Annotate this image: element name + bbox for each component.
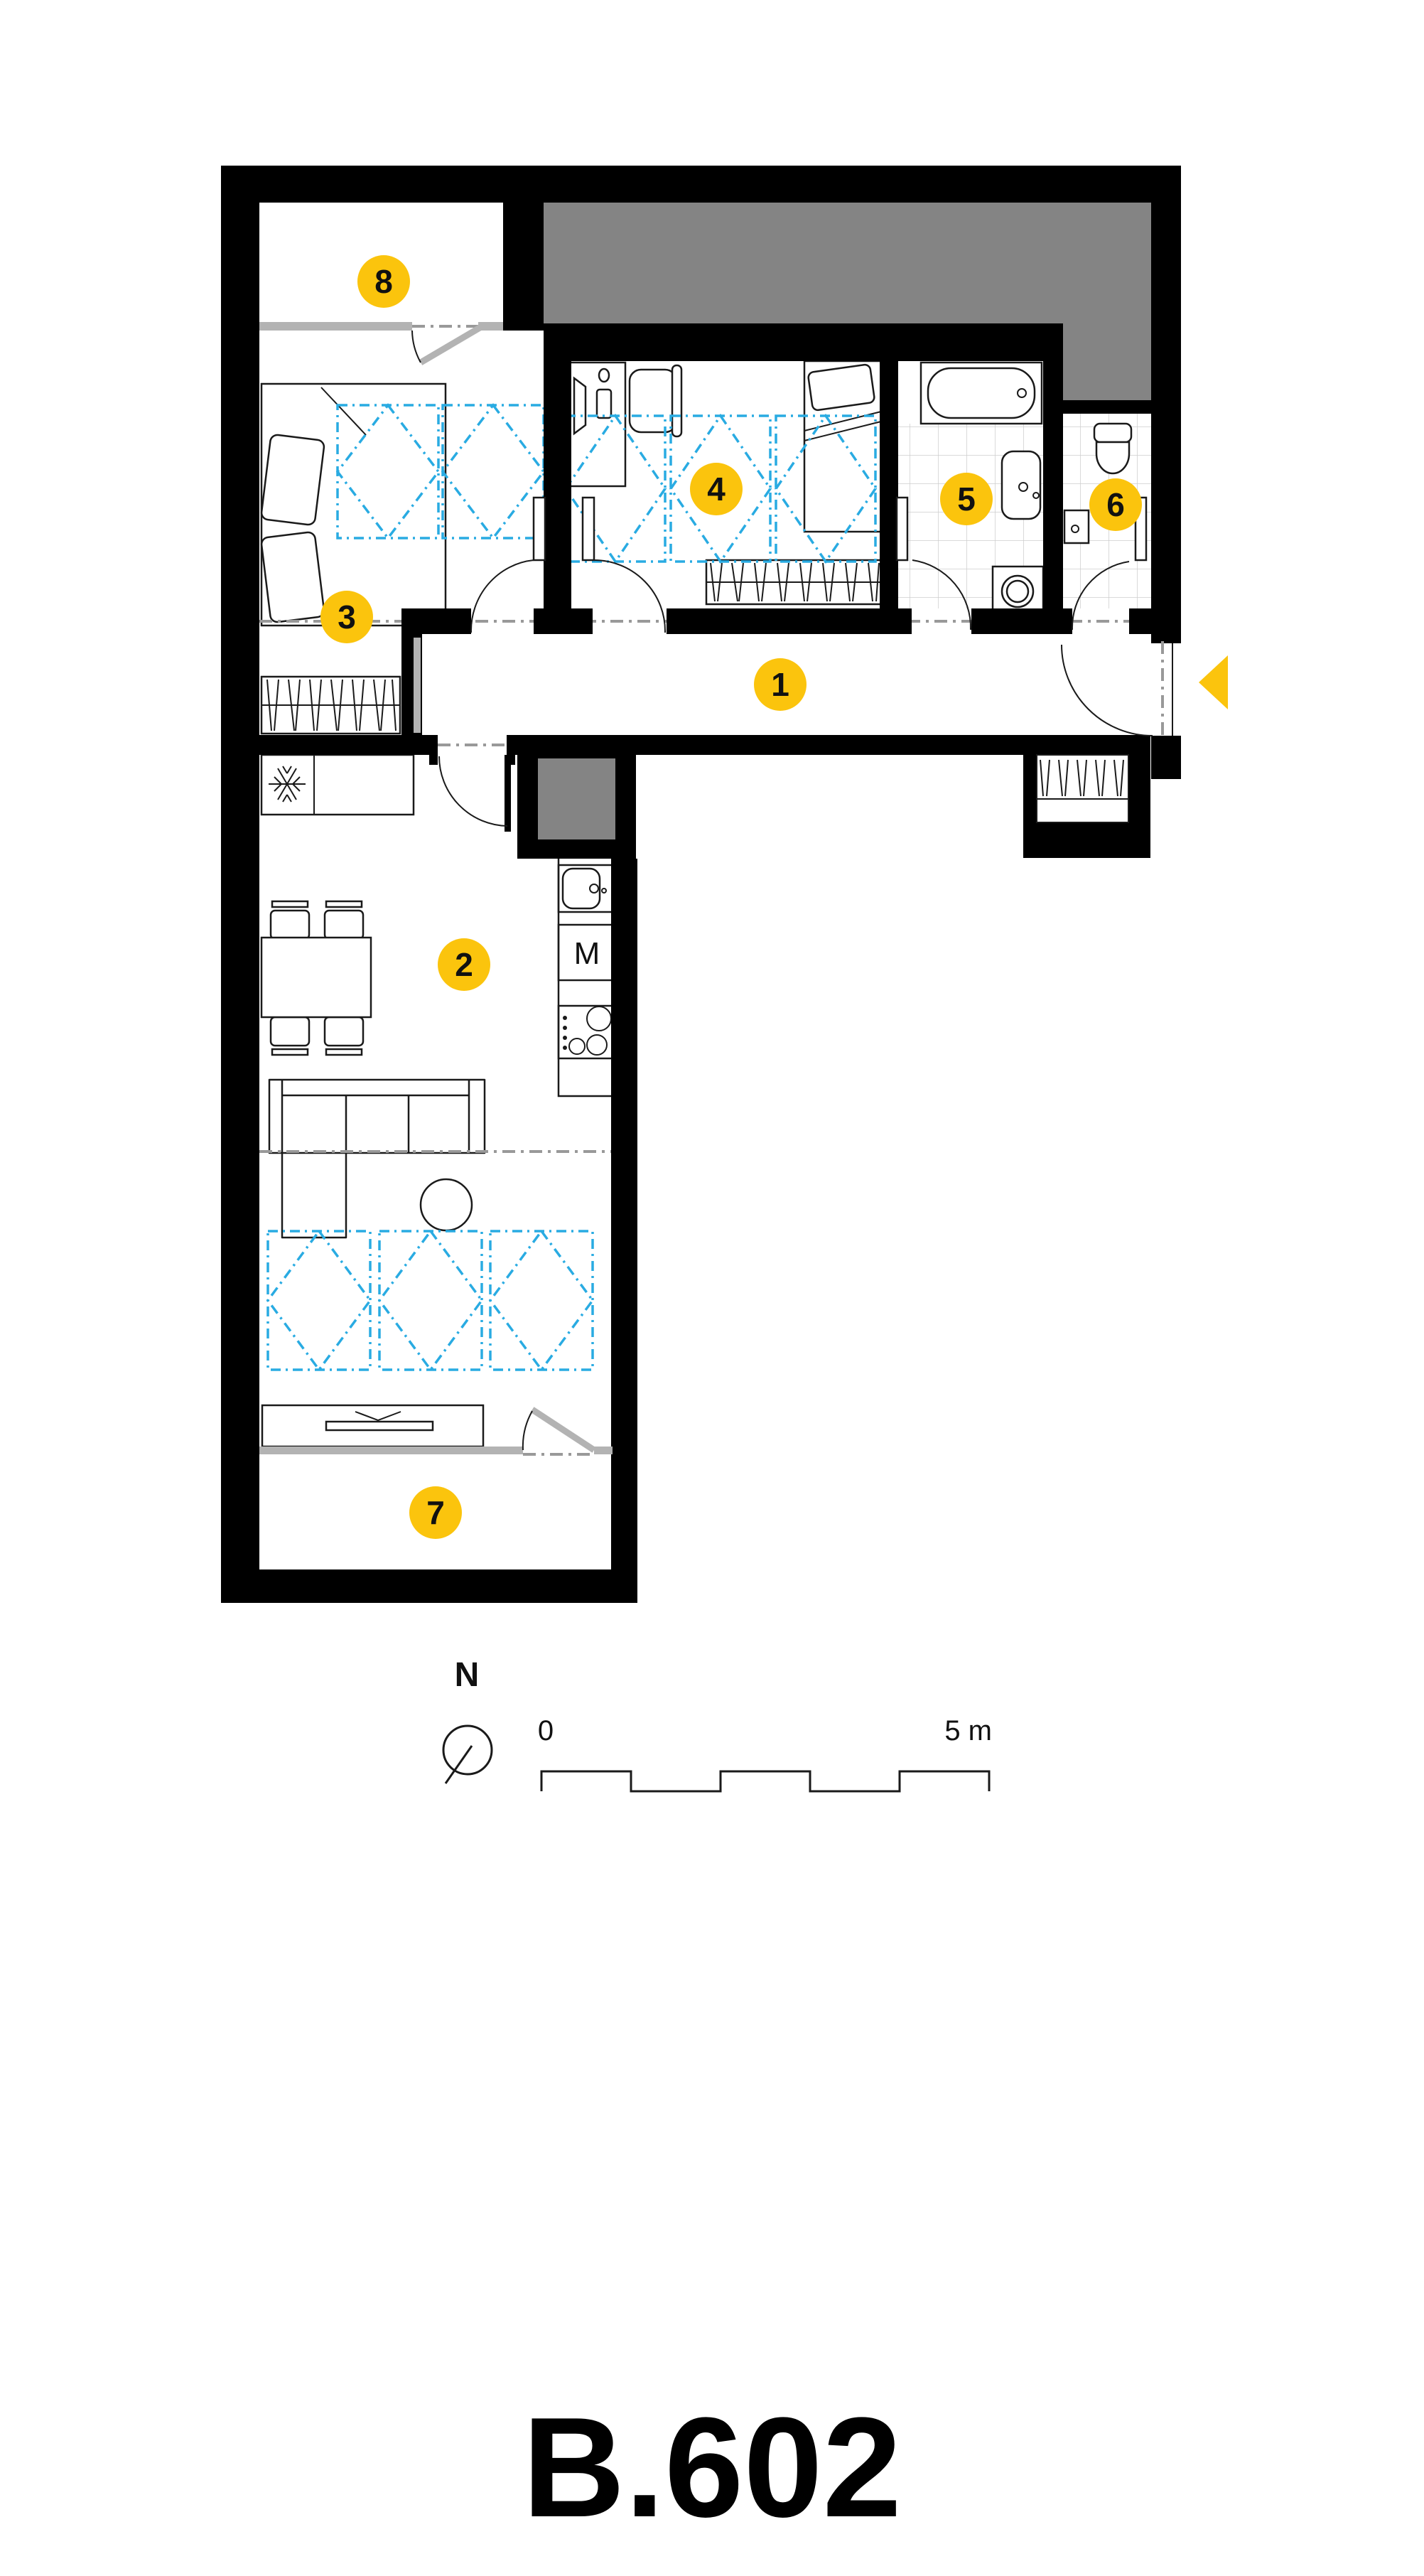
entrance-radiator-niche bbox=[1037, 755, 1128, 822]
wardrobe bbox=[706, 560, 884, 604]
svg-text:N: N bbox=[455, 1656, 480, 1694]
room4-door-leaf bbox=[583, 498, 594, 560]
chair bbox=[325, 1017, 363, 1046]
loggia-door-leaf bbox=[421, 327, 481, 363]
chair bbox=[271, 1017, 309, 1046]
chair-backrest bbox=[272, 1049, 308, 1055]
svg-text:7: 7 bbox=[426, 1494, 445, 1531]
desk-chair bbox=[630, 370, 676, 432]
loggia-door-swing bbox=[412, 331, 421, 363]
chair-backrest bbox=[326, 1049, 362, 1055]
bathroom-door-leaf bbox=[897, 498, 907, 560]
toilet-tank bbox=[1094, 424, 1131, 442]
scale-bar: 0 5 m bbox=[538, 1715, 992, 1791]
installation-shaft bbox=[538, 758, 615, 839]
pillow bbox=[808, 364, 875, 411]
chair bbox=[325, 911, 363, 939]
balcony-glazing bbox=[259, 1447, 523, 1454]
svg-text:2: 2 bbox=[455, 946, 473, 983]
dining-table bbox=[261, 938, 371, 1017]
living-door-swing bbox=[439, 756, 507, 826]
microwave-label: M bbox=[574, 936, 600, 971]
room-marker-5: 5 bbox=[940, 473, 993, 525]
room-marker-1: 1 bbox=[754, 658, 807, 711]
keyboard bbox=[597, 390, 611, 418]
monitor-icon bbox=[574, 378, 586, 434]
room-marker-7: 7 bbox=[409, 1486, 462, 1539]
svg-text:6: 6 bbox=[1106, 486, 1125, 523]
dining-set bbox=[261, 901, 371, 1055]
north-arrow-icon: N bbox=[443, 1656, 492, 1783]
chair-backrest bbox=[326, 901, 362, 907]
entrance-arrow-icon bbox=[1199, 655, 1228, 709]
balcony-door-leaf bbox=[532, 1410, 594, 1450]
pillow bbox=[261, 434, 325, 525]
toilet-bowl bbox=[1096, 442, 1129, 473]
tv-unit bbox=[262, 1405, 483, 1447]
chair-backrest bbox=[272, 901, 308, 907]
room3-door-leaf bbox=[534, 498, 545, 560]
washbasin bbox=[1002, 451, 1040, 519]
chair-backrest bbox=[672, 365, 681, 436]
floor-plan-page: M bbox=[0, 0, 1424, 2576]
room3-west-door-leaf bbox=[414, 638, 421, 733]
svg-text:1: 1 bbox=[771, 666, 789, 703]
room-marker-3: 3 bbox=[320, 591, 373, 643]
floor-plan-canvas: M bbox=[0, 0, 1424, 2576]
sofa-group bbox=[269, 1080, 485, 1238]
room-marker-4: 4 bbox=[690, 463, 743, 515]
entrance-door-swing bbox=[1062, 645, 1153, 736]
svg-text:4: 4 bbox=[707, 471, 726, 508]
unit-title: B.602 bbox=[522, 2388, 902, 2547]
wardrobe bbox=[261, 677, 400, 734]
chair bbox=[271, 911, 309, 939]
svg-text:3: 3 bbox=[338, 599, 356, 635]
room-marker-2: 2 bbox=[438, 938, 490, 991]
living-door-leaf bbox=[505, 755, 511, 832]
balcony-door-swing bbox=[523, 1411, 532, 1450]
loggia-glazing bbox=[259, 322, 412, 331]
svg-text:8: 8 bbox=[374, 263, 393, 300]
svg-text:5: 5 bbox=[957, 481, 976, 517]
room-marker-6: 6 bbox=[1089, 478, 1142, 531]
wc-basin bbox=[1064, 510, 1089, 543]
mouse bbox=[599, 369, 609, 382]
ceiling-zone bbox=[268, 1231, 593, 1370]
room-marker-8: 8 bbox=[357, 255, 410, 308]
pillow bbox=[261, 532, 325, 623]
coffee-table bbox=[421, 1179, 472, 1230]
scale-end-label: 5 m bbox=[944, 1715, 992, 1746]
scale-start-label: 0 bbox=[538, 1715, 554, 1746]
